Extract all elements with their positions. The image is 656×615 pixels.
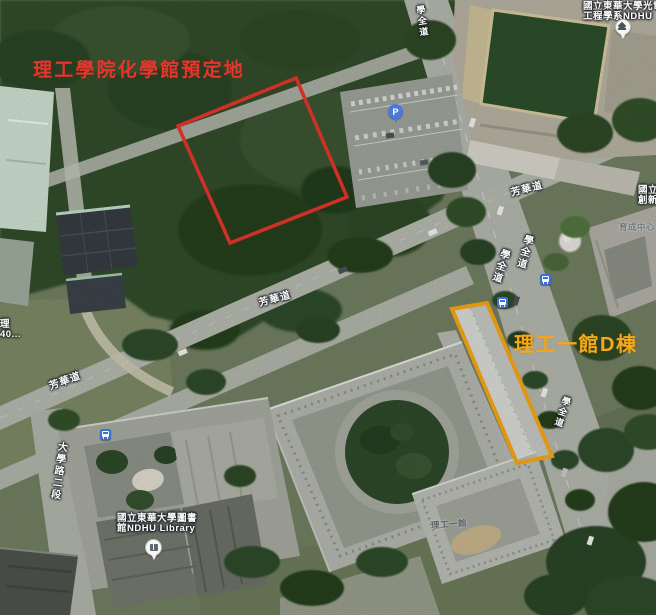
parking-pin-letter: P	[388, 107, 403, 117]
poi-library: 國立東華大學圖書 館NDHU Library	[117, 514, 197, 533]
poi-incubation-building: 育成中心	[619, 221, 655, 233]
bus-stop-icon[interactable]	[540, 274, 551, 285]
bus-stop-icon[interactable]	[497, 297, 508, 308]
poi-edge-clipped: 理 40...	[0, 320, 21, 339]
planned-site-label: 理工學院化學館預定地	[33, 55, 245, 82]
imagery-grain	[0, 0, 656, 615]
parking-pin[interactable]: P	[388, 104, 403, 125]
satellite-map-canvas[interactable]: 理工學院化學館預定地 理工一館D棟 芳華道 芳華道 芳華道 學全道 學全道 學全…	[0, 0, 656, 615]
bus-stop-icon[interactable]	[100, 429, 111, 440]
parking-pin-tail	[393, 117, 399, 123]
poi-incubation-center: 國立 創新	[638, 186, 656, 205]
poi-edge-clipped-line2: 40...	[0, 330, 21, 340]
satellite-imagery	[0, 0, 656, 615]
poi-sci-eng-hall1: 理工一館	[431, 517, 468, 531]
poi-incubation-line2: 創新	[638, 196, 656, 206]
poi-library-line2: 館NDHU Library	[117, 524, 197, 534]
building-d-label: 理工一館D棟	[514, 328, 637, 357]
library-pin[interactable]	[145, 539, 162, 563]
department-pin[interactable]	[615, 19, 631, 42]
